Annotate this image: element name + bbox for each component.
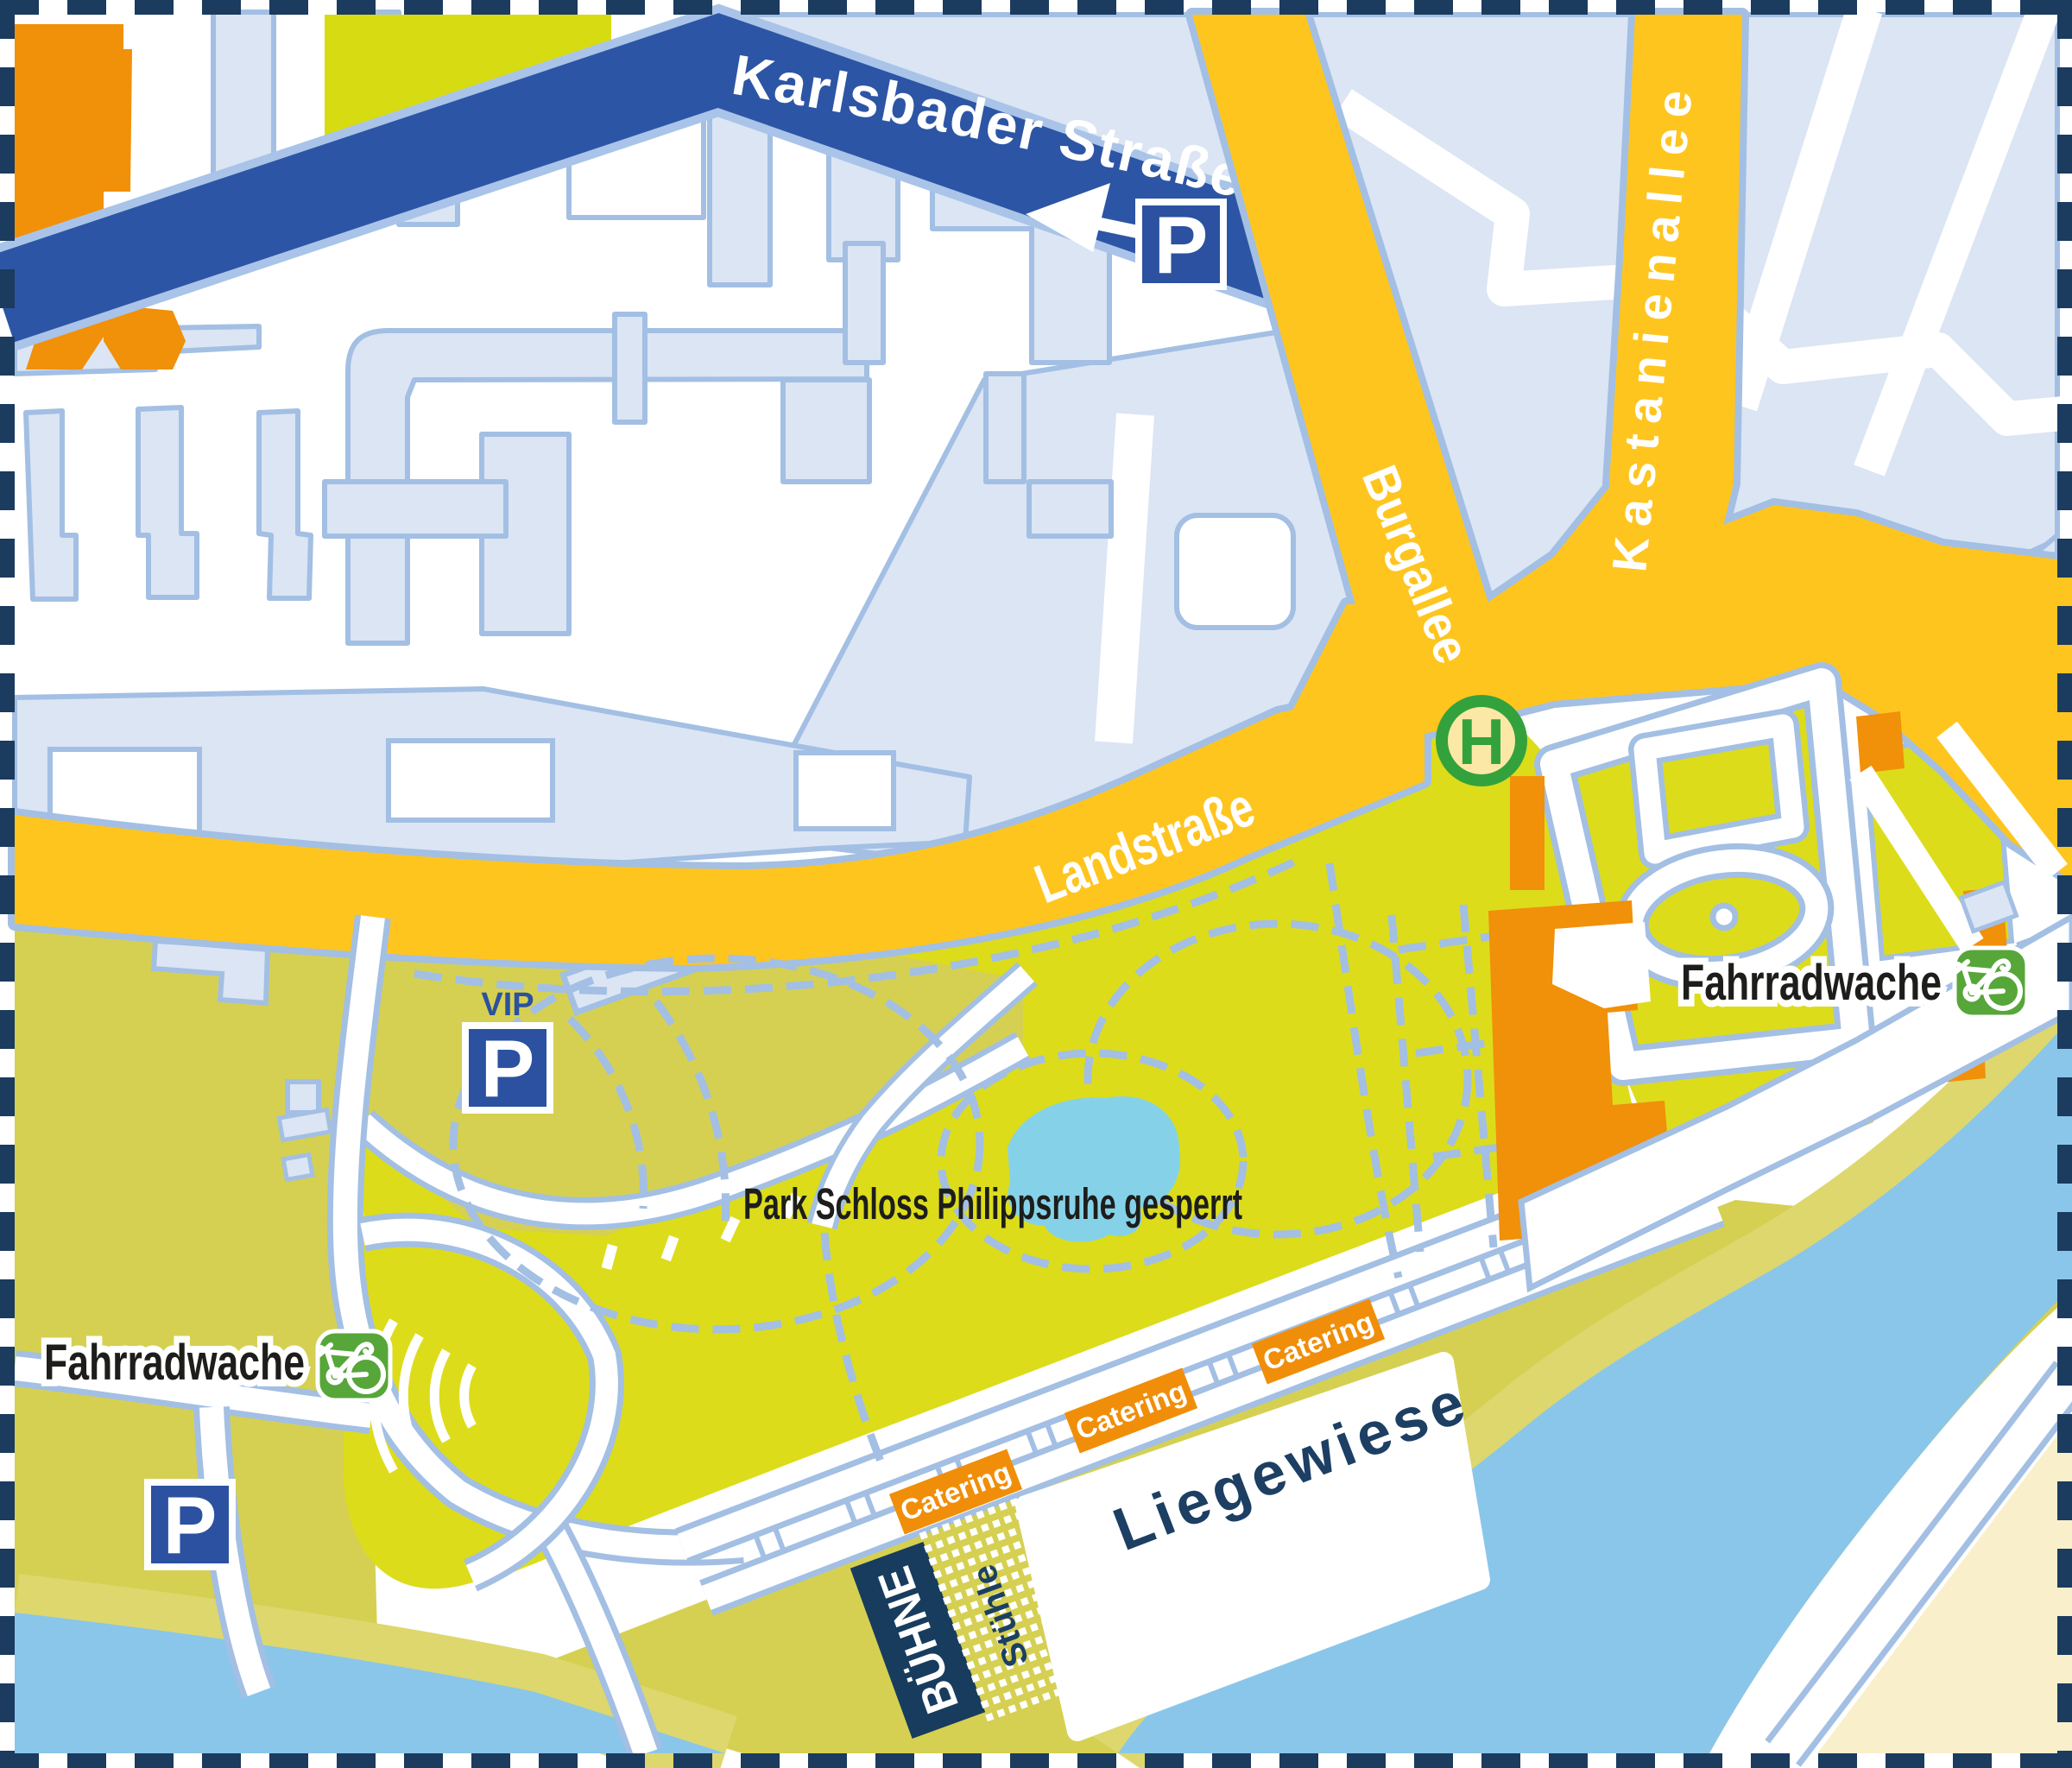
svg-text:Fahrradwache: Fahrradwache <box>1681 955 1942 1011</box>
svg-text:VIP: VIP <box>481 987 534 1023</box>
svg-text:Fahrradwache: Fahrradwache <box>44 1335 305 1391</box>
svg-text:H: H <box>1458 705 1505 778</box>
svg-text:Park Schloss Philippsruhe gesp: Park Schloss Philippsruhe gesperrt <box>743 1179 1242 1228</box>
